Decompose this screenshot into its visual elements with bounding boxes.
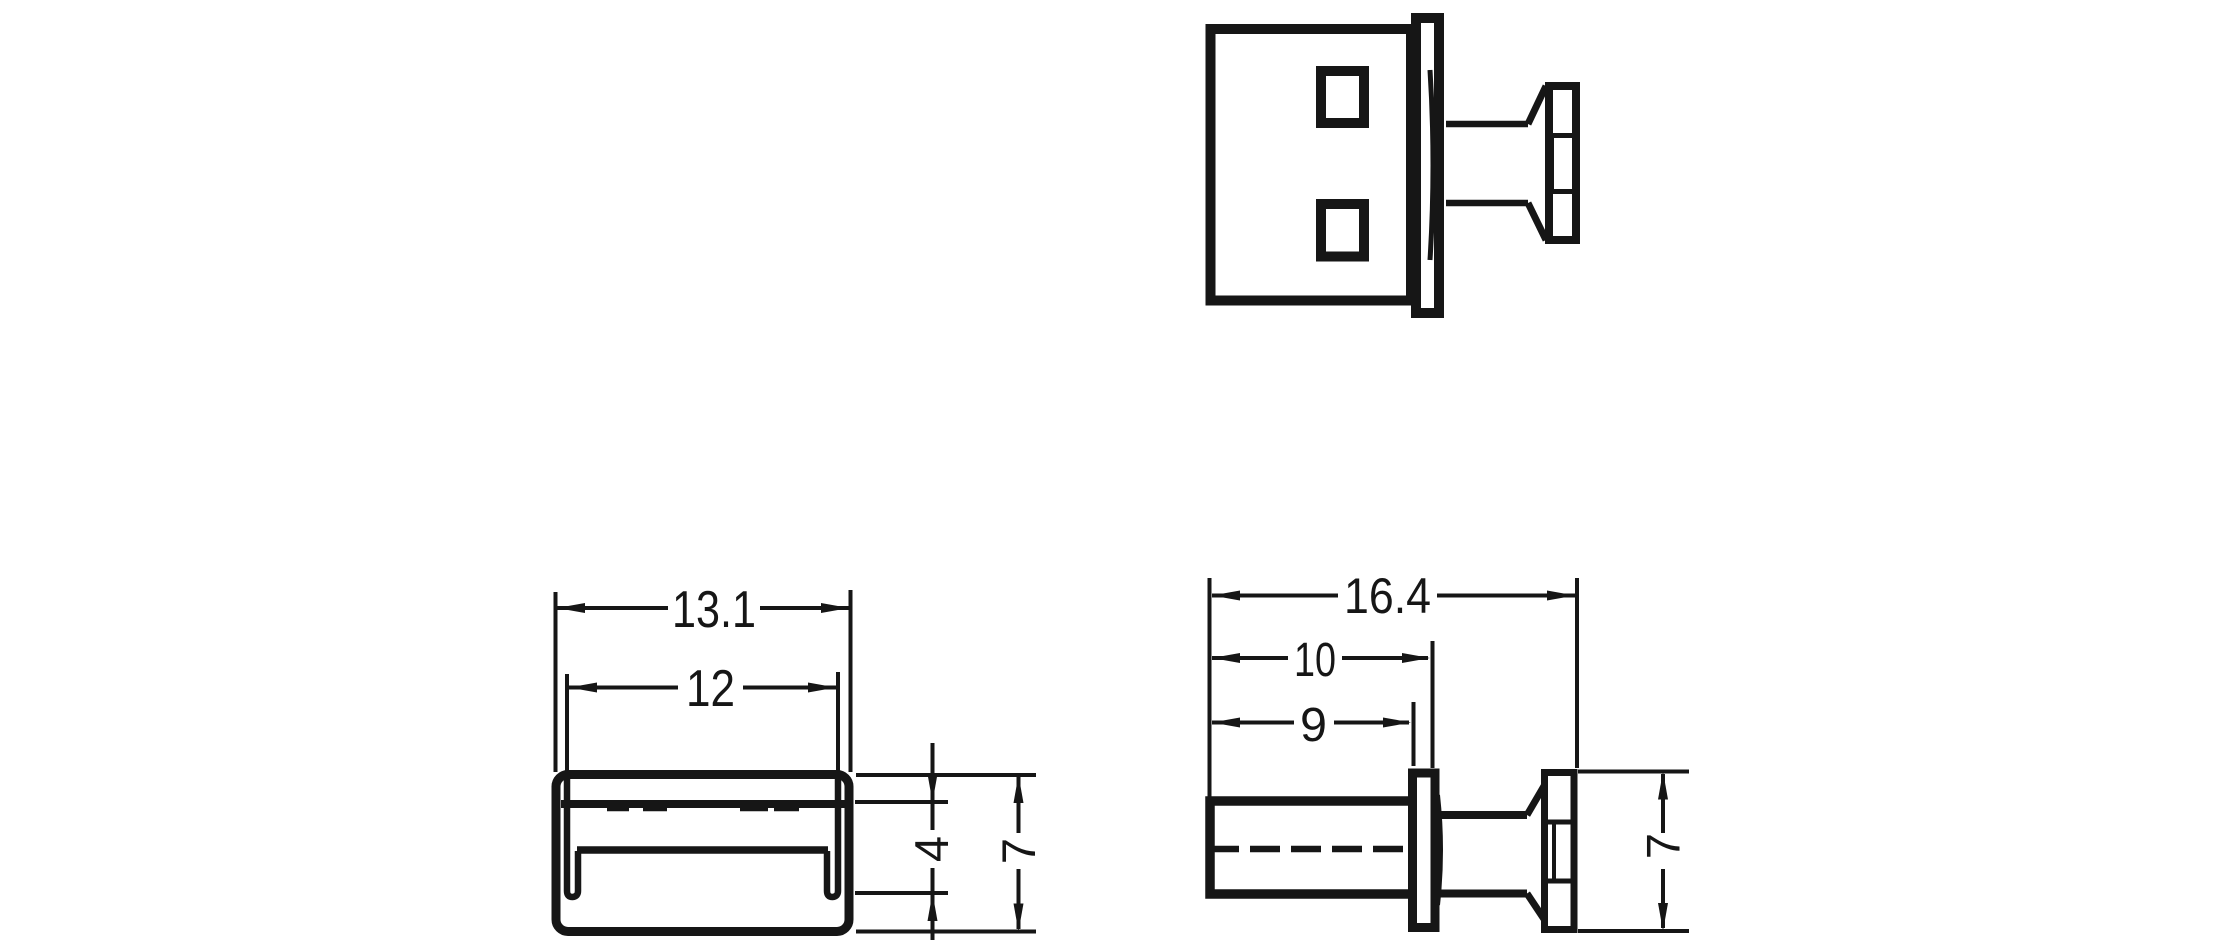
svg-text:13.1: 13.1 [672,581,756,639]
svg-text:7: 7 [1637,833,1690,859]
svg-text:10: 10 [1294,634,1336,687]
svg-text:16.4: 16.4 [1344,568,1431,624]
svg-text:4: 4 [905,836,958,862]
svg-text:12: 12 [686,660,735,718]
svg-text:7: 7 [992,838,1045,864]
svg-text:9: 9 [1300,699,1327,752]
